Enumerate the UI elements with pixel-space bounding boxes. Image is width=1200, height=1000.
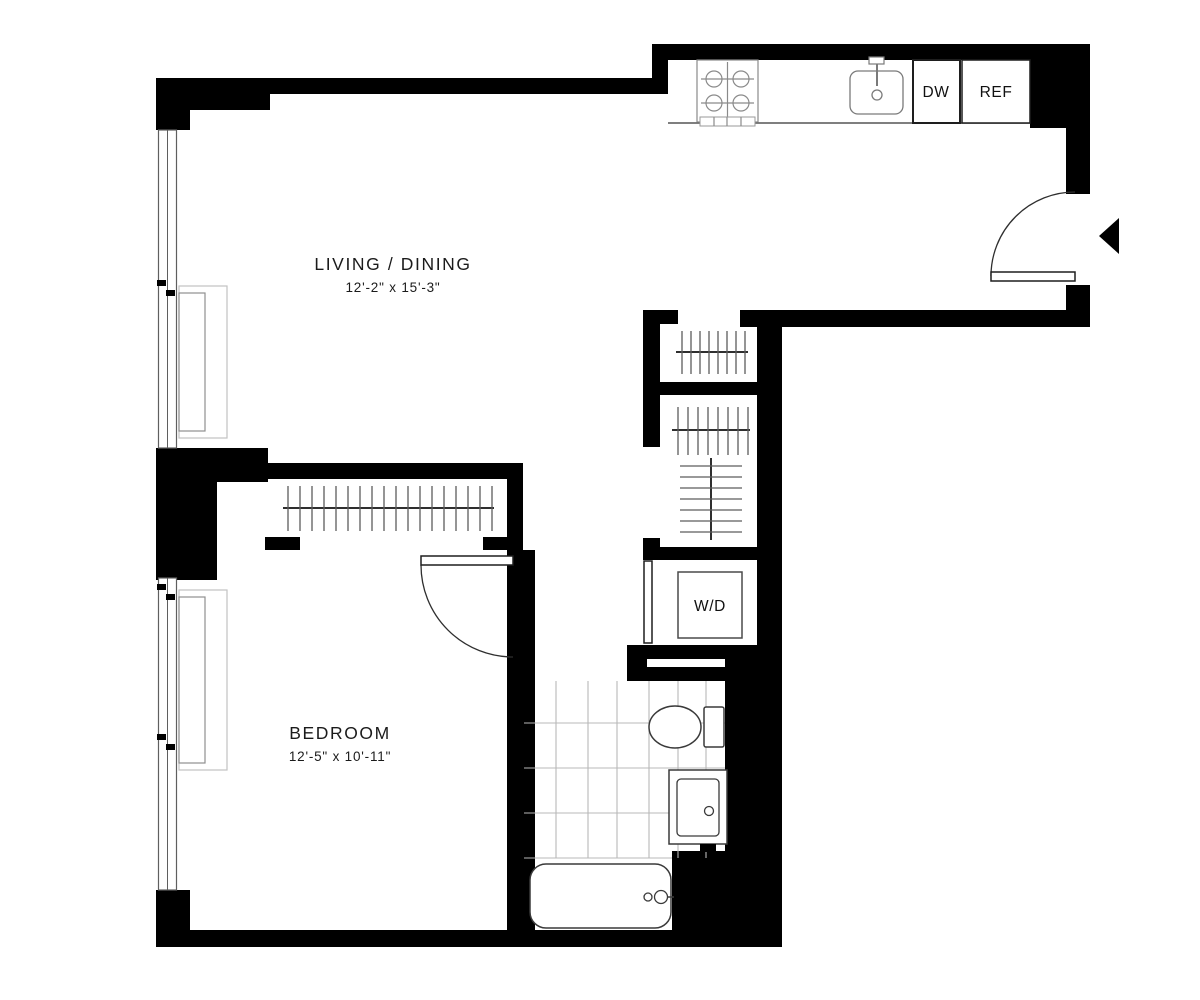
bedroom-door [421, 556, 513, 657]
radiator-icon [179, 286, 227, 438]
living-room-label: LIVING / DINING [314, 254, 471, 274]
vanity-sink-icon [669, 770, 727, 852]
bathtub-icon [530, 864, 680, 928]
bedroom-dimensions: 12'-5" x 10'-11" [289, 749, 391, 764]
bedroom-radiator [179, 590, 227, 770]
kitchen-sink-icon [850, 57, 903, 114]
walkin-closet [672, 407, 750, 540]
entry-door [991, 192, 1119, 281]
bedroom-closet [283, 486, 494, 531]
door-leaf [991, 272, 1075, 281]
bedroom-window [157, 578, 177, 890]
door-swing-icon [421, 565, 513, 657]
walls [156, 44, 1090, 947]
coat-closet [676, 331, 748, 374]
washer-dryer-label: W/D [694, 598, 726, 615]
stove-icon [697, 60, 758, 126]
door-leaf [644, 561, 652, 643]
door-swing-icon [991, 192, 1075, 276]
floor-plan-page: DW REF W/D [0, 0, 1200, 1000]
living-window [157, 130, 177, 448]
dishwasher-box: DW [913, 60, 960, 123]
bedroom-label: BEDROOM [289, 723, 391, 743]
refrigerator-label: REF [980, 84, 1013, 101]
washer-dryer-closet: W/D [644, 561, 742, 643]
living-radiator [179, 286, 227, 438]
living-room-dimensions: 12'-2" x 15'-3" [345, 280, 440, 295]
dishwasher-label: DW [922, 84, 949, 101]
kitchen: DW REF [668, 57, 1030, 126]
refrigerator-box: REF [962, 60, 1030, 123]
floor-plan: DW REF W/D [0, 0, 1200, 1000]
door-leaf [421, 556, 513, 565]
entry-arrow-icon [1099, 218, 1119, 254]
toilet-icon [649, 706, 724, 748]
radiator-icon [179, 590, 227, 770]
